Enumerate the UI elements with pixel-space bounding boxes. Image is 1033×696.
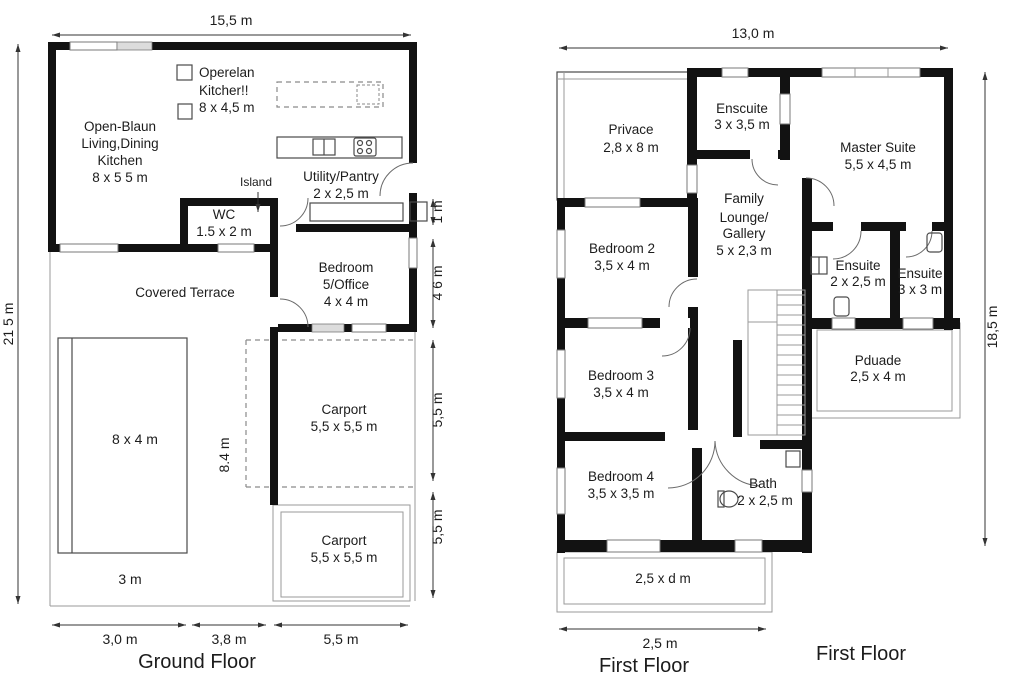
- room-label-utility: 2 x 2,5 m: [313, 186, 369, 201]
- room-label-pduade: 2,5 x 4 m: [850, 369, 906, 384]
- floor-plan-page: 15,5 m 21 5 m 1 m 4 6 m 5,5 m 5,5 m 3,0 …: [0, 0, 1033, 696]
- dim-carport-depth: 8.4 m: [216, 437, 232, 472]
- room-label-family: Gallery: [723, 226, 766, 241]
- room-label-bedroom3: Bedroom 3: [588, 368, 654, 383]
- ground-floor-labels: Open-Blaun Living,Dining Kitchen 8 x 5 5…: [81, 65, 379, 673]
- room-label-family: 5 x 2,3 m: [716, 243, 772, 258]
- note-kitchen: Operelan: [199, 65, 255, 80]
- dim-bottom-3: 5,5 m: [323, 631, 358, 647]
- ensuite-a-door-arc-icon: [833, 231, 861, 259]
- room-label-bedroom2: 3,5 x 4 m: [594, 258, 650, 273]
- room-label-privace: 2,8 x 8 m: [603, 140, 659, 155]
- room-label-wc: 1.5 x 2 m: [196, 224, 252, 239]
- dim-right-4: 5,5 m: [429, 509, 445, 544]
- dim-top: 15,5 m: [210, 12, 253, 28]
- room-label-bath: Bath: [749, 476, 777, 491]
- stove-icon: [354, 138, 376, 156]
- staircase: [748, 290, 805, 435]
- dim-bottom: 2,5 m: [642, 635, 677, 651]
- ground-floor-plan: 15,5 m 21 5 m 1 m 4 6 m 5,5 m 5,5 m 3,0 …: [0, 12, 445, 673]
- first-floor-plan: 13,0 m 18,5 m 2,5 m Privace 2,8 x 8 m En…: [557, 25, 1000, 677]
- toilet-icon: [834, 297, 849, 316]
- floor-plan-drawing: 15,5 m 21 5 m 1 m 4 6 m 5,5 m 5,5 m 3,0 …: [0, 0, 1033, 696]
- dim-right-2: 4 6 m: [429, 265, 445, 300]
- utility-door-arc-icon: [380, 163, 413, 196]
- room-label-open-plan: Living,Dining: [81, 136, 158, 151]
- dim-bottom-2: 3,8 m: [211, 631, 246, 647]
- room-label-master: 5,5 x 4,5 m: [845, 157, 912, 172]
- hall-double-door-arc-icon: [668, 441, 715, 488]
- room-label-bedroom4: Bedroom 4: [588, 469, 655, 484]
- room-label-bedroom4: 3,5 x 3,5 m: [588, 486, 655, 501]
- room-label-open-plan: Open-Blaun: [84, 119, 156, 134]
- utility-closet-icon: [310, 203, 403, 221]
- bath-sink-icon: [786, 451, 800, 467]
- room-label-privace: Privace: [608, 122, 653, 137]
- wc-door-arc-icon: [280, 198, 308, 226]
- dim-right-1: 1 m: [429, 200, 445, 223]
- room-label-master: Master Suite: [840, 140, 916, 155]
- room-label-bedroom3: 3,5 x 4 m: [593, 385, 649, 400]
- room-label-ensuite-a: 2 x 2,5 m: [830, 274, 886, 289]
- legend-square-icon: [177, 65, 192, 80]
- dim-right: 18,5 m: [984, 306, 1000, 349]
- room-label-open-plan: Kitchen: [97, 153, 142, 168]
- first-floor-title-left: First Floor: [599, 655, 689, 677]
- dim-top: 13,0 m: [732, 25, 775, 41]
- legend-square-icon: [178, 104, 192, 119]
- kitchen-island-dashed-icon: [277, 82, 383, 107]
- room-label-enscuite: 3 x 3,5 m: [714, 117, 770, 132]
- room-label-ensuite-b: Ensuite: [897, 266, 942, 281]
- room-label-wc: WC: [213, 207, 236, 222]
- room-label-bedroom5: 5/Office: [323, 277, 369, 292]
- room-label-carport-lower: Carport: [321, 533, 366, 548]
- dim-bottom-1: 3,0 m: [102, 631, 137, 647]
- room-label-ensuite-a: Ensuite: [835, 258, 880, 273]
- room-label-ensuite-b: 3 x 3 m: [898, 282, 942, 297]
- dim-right-3: 5,5 m: [429, 392, 445, 427]
- room-label-carport-lower: 5,5 x 5,5 m: [311, 550, 378, 565]
- room-label-pduade: Pduade: [855, 353, 902, 368]
- room-label-carport-upper: Carport: [321, 402, 366, 417]
- room-label-family: Family: [724, 191, 764, 206]
- dim-left: 21 5 m: [0, 303, 16, 346]
- label-pool-size: 8 x 4 m: [112, 431, 158, 447]
- first-floor-title-right: First Floor: [816, 643, 906, 665]
- room-label-utility: Utility/Pantry: [303, 169, 379, 184]
- room-label-balcony: 2,5 x d m: [635, 571, 691, 586]
- room-label-carport-upper: 5,5 x 5,5 m: [311, 419, 378, 434]
- room-label-terrace: Covered Terrace: [135, 285, 235, 300]
- label-pool-margin: 3 m: [118, 571, 141, 587]
- bath-toilet-icon: [720, 491, 738, 507]
- bedroom5-door-arc-icon: [280, 299, 308, 327]
- note-kitchen: Kitcher!!: [199, 83, 249, 98]
- ground-floor-title: Ground Floor: [138, 651, 256, 673]
- room-label-bedroom5: 4 x 4 m: [324, 294, 368, 309]
- room-label-family: Lounge/: [720, 210, 769, 225]
- room-label-bedroom2: Bedroom 2: [589, 241, 655, 256]
- label-island: Island: [240, 175, 272, 189]
- ensuite-b-door-arc-icon: [906, 231, 932, 257]
- enscuite-door-arc-icon: [752, 159, 778, 185]
- kitchen-counter-icon: [277, 137, 402, 158]
- room-label-bedroom5: Bedroom: [319, 260, 374, 275]
- bedroom3-door-arc-icon: [662, 328, 690, 356]
- note-kitchen: 8 x 4,5 m: [199, 100, 255, 115]
- room-label-enscuite: Enscuite: [716, 101, 768, 116]
- room-label-open-plan: 8 x 5 5 m: [92, 170, 148, 185]
- room-label-bath: 2 x 2,5 m: [737, 493, 793, 508]
